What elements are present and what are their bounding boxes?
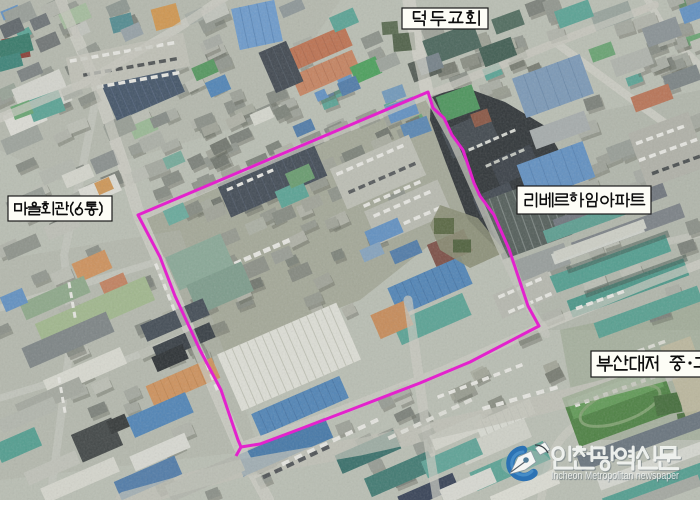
svg-text:Incheon Metropolitan newspaper: Incheon Metropolitan newspaper [551, 470, 679, 482]
